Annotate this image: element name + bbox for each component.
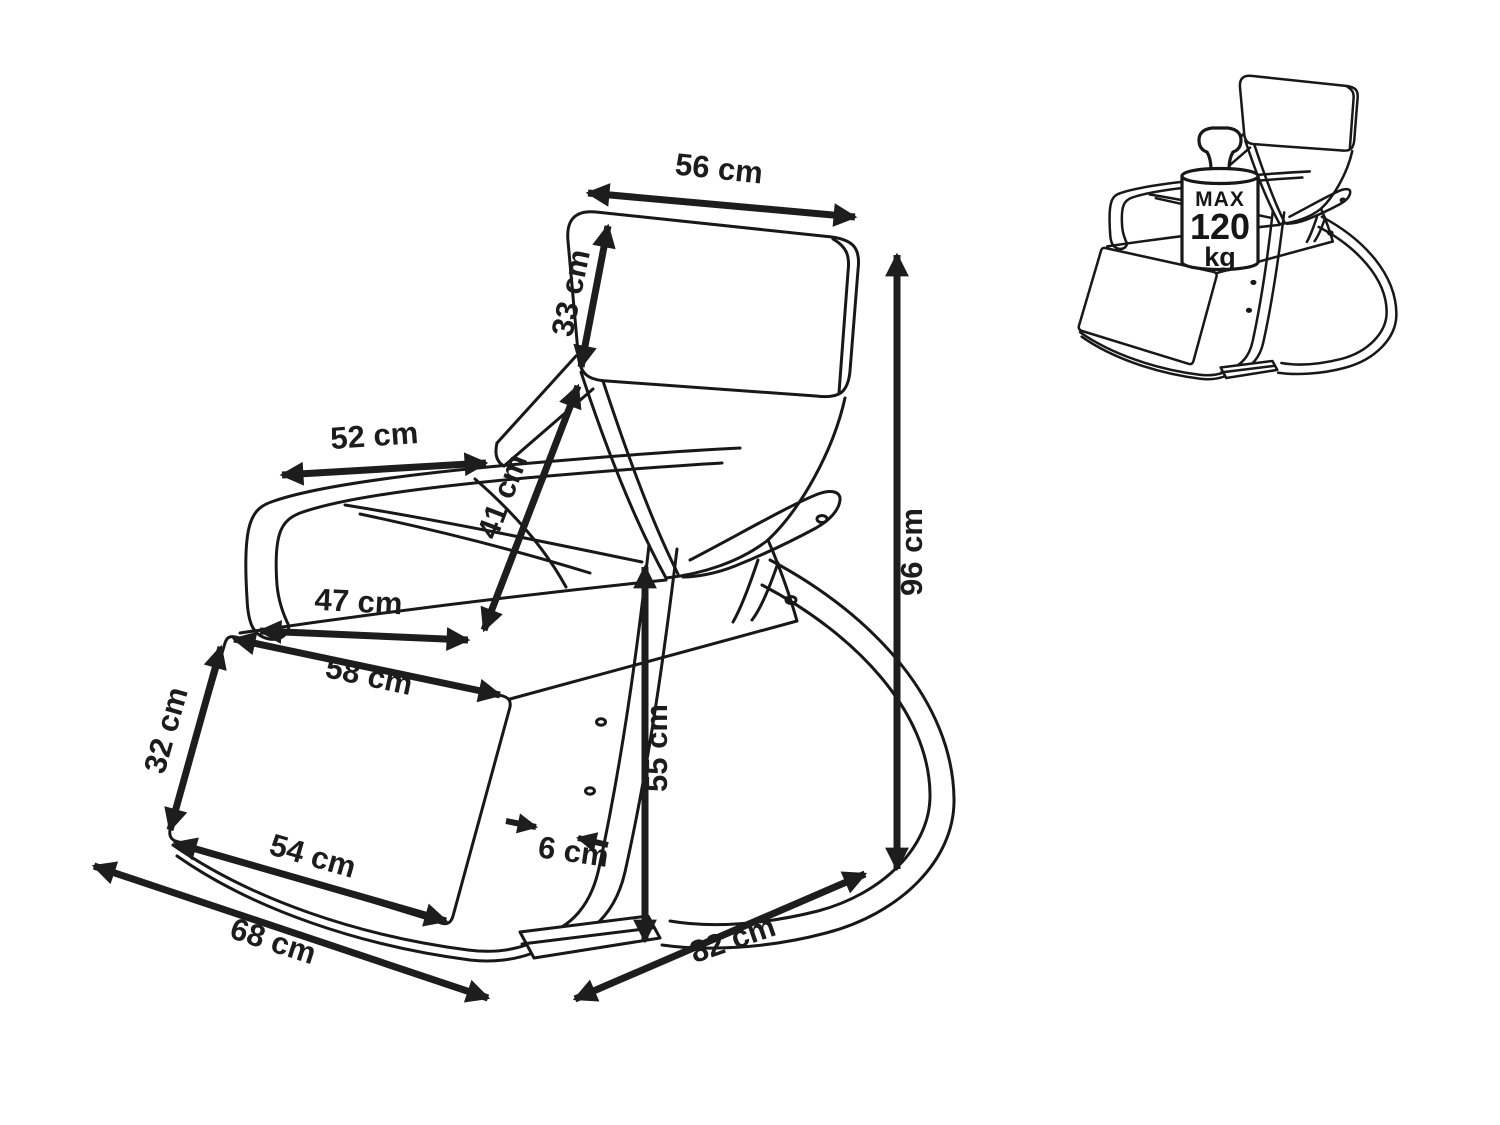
weight-limit-unit: kg [1204,242,1236,272]
dimension-label: 82 cm [685,908,780,970]
dimension-diagram: MAX 120 kg 56 cm 33 cm 52 cm 41 cm 47 cm… [0,0,1500,1125]
dimension-headrest-width: 56 cm [588,147,855,217]
dimension-seat-width: 47 cm [260,582,468,640]
dimension-arrow [506,821,536,827]
weight-cylinder-top [1182,176,1258,184]
dimension-label: 6 cm [536,829,611,873]
dimension-arrow [260,631,468,640]
diagram-canvas: MAX 120 kg 56 cm 33 cm 52 cm 41 cm 47 cm… [0,0,1500,1125]
dimension-label: 56 cm [674,147,765,191]
dimension-backrest-height: 41 cm [470,386,578,630]
dimension-label: 96 cm [894,508,929,596]
weight-knob [1199,128,1241,170]
dimension-label: 55 cm [639,704,674,792]
dimension-armrest-length: 52 cm [282,415,486,475]
dimension-label: 52 cm [329,415,419,456]
dimension-total-height: 96 cm [894,255,929,869]
dimension-arrow [588,193,855,217]
dimension-frame-thickness: 6 cm [506,821,611,874]
weight-limit-value: 120 [1190,206,1250,247]
dimension-label: 47 cm [314,582,404,622]
